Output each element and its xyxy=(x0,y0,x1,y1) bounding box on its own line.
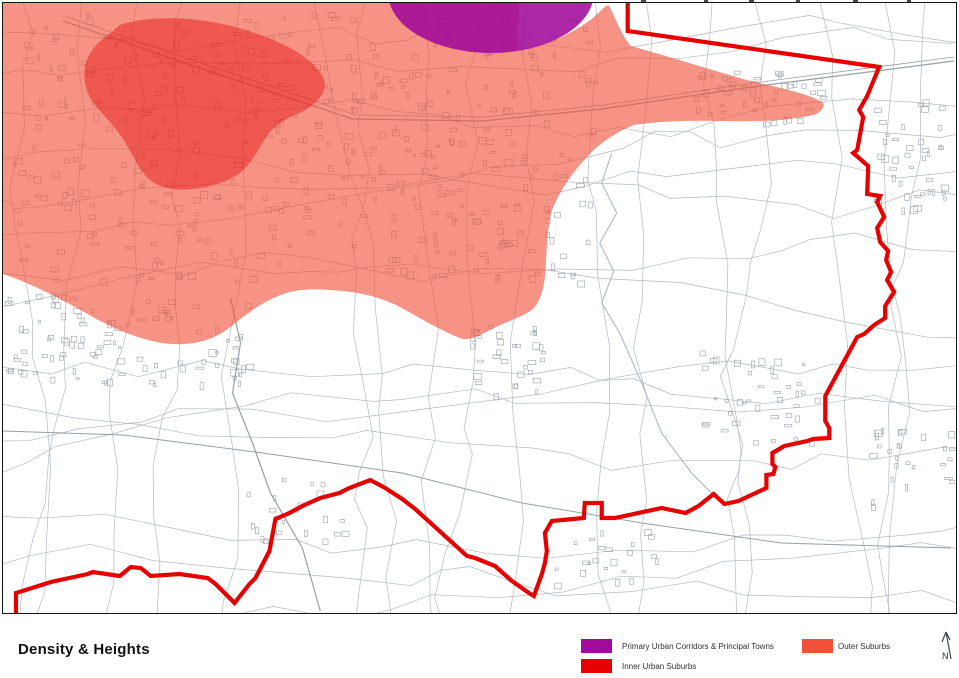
map-canvas xyxy=(3,3,956,613)
map-viewport xyxy=(2,2,957,614)
page: Density & Heights Primary Urban Corridor… xyxy=(0,0,959,678)
legend-label-inner-urban: Inner Urban Suburbs xyxy=(622,662,696,671)
legend-swatch-outer-suburbs xyxy=(802,639,833,653)
page-title: Density & Heights xyxy=(18,641,150,658)
legend-swatch-inner-urban xyxy=(581,659,612,673)
legend-swatch-primary-urban xyxy=(581,639,612,653)
north-arrow-label: N xyxy=(942,651,949,661)
legend-label-primary-urban: Primary Urban Corridors & Principal Town… xyxy=(622,642,774,651)
legend-label-outer-suburbs: Outer Suburbs xyxy=(838,642,890,651)
north-arrow-icon: N xyxy=(936,626,958,666)
